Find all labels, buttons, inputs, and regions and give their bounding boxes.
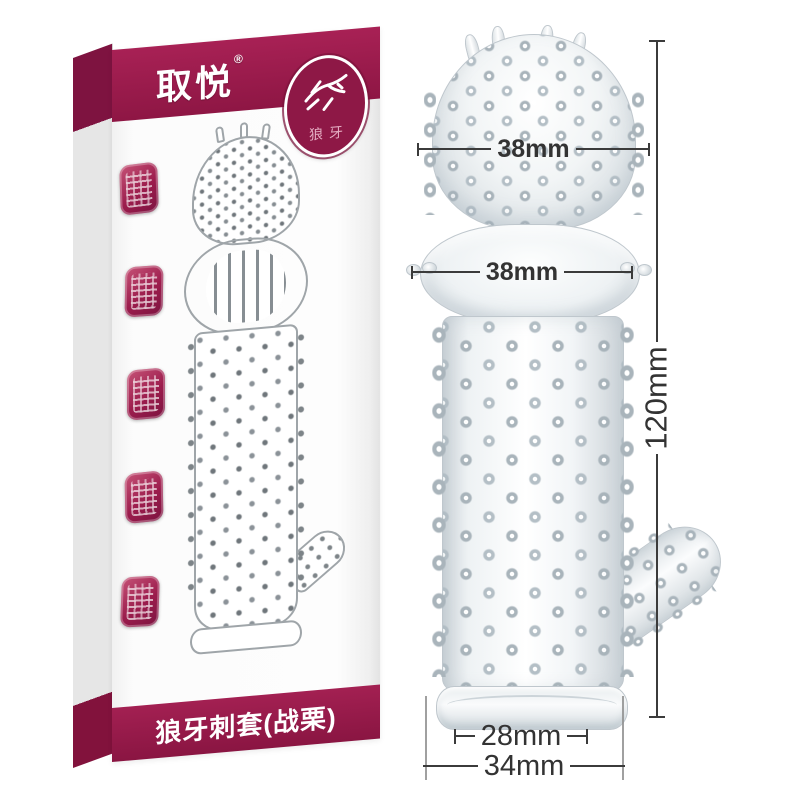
dimension-line: [423, 765, 478, 767]
brand-text: 取悦: [156, 60, 234, 108]
dimension-line: [656, 42, 658, 342]
dimension-line: [413, 271, 480, 273]
dimension-line: [419, 148, 491, 150]
dimension-label-total-length: 120mm: [639, 346, 675, 449]
box-title: 狼牙刺套(战栗): [155, 697, 336, 750]
dimension-tick: [631, 266, 633, 279]
dimension-line: [656, 454, 658, 716]
dimension-label-base-outer: 34mm: [484, 752, 565, 781]
dimension-line: [567, 735, 586, 737]
dimension-tick: [586, 729, 588, 744]
seal-stamp: [125, 265, 164, 318]
box-front-face: 取悦® 狼牙: [112, 27, 380, 762]
seal-stamp: [125, 470, 164, 524]
seal-stamp-icon: [131, 478, 158, 517]
dimension-ring-width: 38mm: [411, 258, 633, 286]
seal-stamp-icon: [126, 583, 153, 620]
dimension-line: [456, 735, 475, 737]
seal-stamp: [127, 367, 165, 420]
seal-stamp-icon: [133, 375, 159, 413]
product-photo: 取悦® 狼牙: [0, 0, 800, 800]
dimension-head-width: 38mm: [417, 135, 650, 163]
illustration-spike: [215, 126, 225, 143]
box-title-band: 狼牙刺套(战栗): [112, 685, 380, 762]
illustration-head: [192, 132, 300, 249]
dimension-base-outer: 34mm: [423, 752, 625, 780]
dimension-line: [576, 148, 648, 150]
dimension-tick: [649, 716, 665, 718]
seal-stamp: [120, 575, 160, 627]
dimension-label-head-width: 38mm: [497, 137, 569, 162]
dimension-label-ring-width: 38mm: [486, 260, 558, 285]
sleeve-head: [432, 34, 636, 230]
box-side-face: [73, 43, 113, 768]
dimension-label-base-inner: 28mm: [481, 722, 562, 751]
brand-logo: 取悦®: [156, 51, 246, 111]
dimension-line: [570, 765, 625, 767]
registered-mark: ®: [234, 51, 246, 66]
sleeve-shaft: [442, 316, 624, 692]
dimension-base-inner: 28mm: [454, 722, 588, 750]
badge-label: 狼牙: [303, 121, 349, 145]
seal-stamp: [119, 161, 159, 215]
seal-stamp-icon: [131, 272, 158, 310]
wolf-icon: [298, 67, 354, 124]
box-product-illustration: [164, 119, 329, 663]
dimension-label-wrap: 120mm: [647, 342, 667, 454]
seal-stamp-icon: [125, 169, 152, 208]
dimension-line: [564, 271, 631, 273]
illustration-shaft: [194, 324, 298, 633]
dimension-total-length: 120mm: [647, 40, 667, 718]
